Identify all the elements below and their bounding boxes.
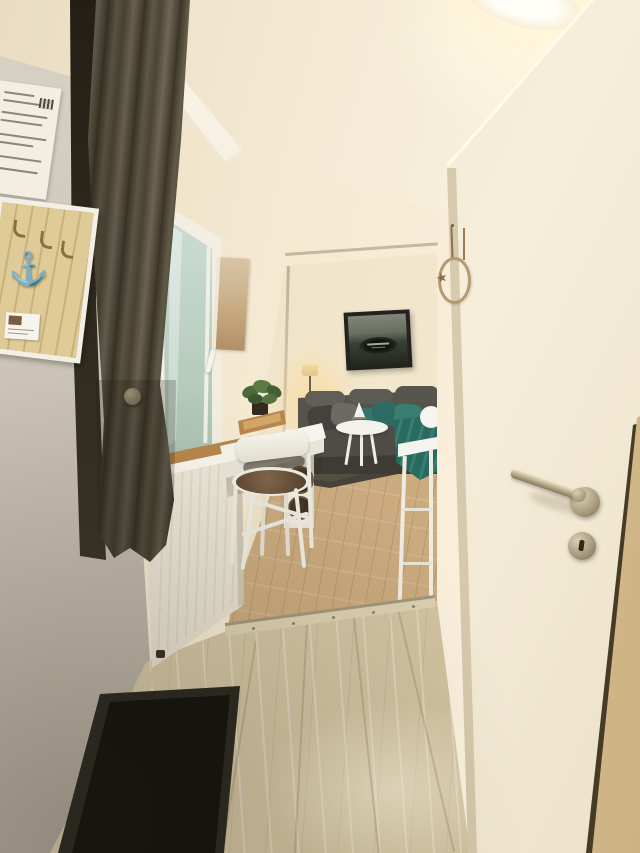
shelf-unit-shelf [401, 508, 432, 511]
sheet-text-line [4, 91, 34, 97]
strip-screw [412, 605, 415, 608]
key-hook [60, 241, 75, 259]
side-table-leg [360, 432, 363, 466]
rack-card-text [8, 332, 28, 334]
hallway-canvas-art [214, 257, 250, 350]
strip-screw [372, 611, 375, 614]
strip-screw [332, 616, 335, 619]
strip-screw [292, 622, 295, 625]
side-table [336, 420, 388, 435]
sheet-text-line [2, 111, 48, 119]
key-hook [39, 231, 54, 249]
boat-picture-image [348, 314, 409, 367]
boat-picture-frame [344, 309, 413, 370]
boat-hull [359, 336, 398, 355]
radiator-drain-valve [156, 650, 165, 658]
sailboat-ornament [354, 402, 365, 417]
sailboat-ornament-hull [352, 417, 366, 419]
sheet-text-line [0, 119, 42, 127]
decoration-stick [463, 228, 465, 260]
sheet-text-line [0, 133, 46, 142]
floor-lamp-shade [302, 364, 318, 376]
plant-leaf [248, 394, 263, 404]
rack-info-card [4, 312, 40, 340]
shelf-unit-shelf [403, 562, 432, 565]
sofa-back-cushion [395, 386, 439, 402]
apartment-hallway-photo: ⚓ ★ [0, 0, 640, 853]
sheet-text-line [0, 140, 33, 147]
sheet-text-line [0, 166, 38, 174]
sheet-barcode [39, 98, 54, 110]
anchor-ornament: ⚓ [8, 249, 49, 288]
key-hook [12, 220, 27, 238]
rack-card-photo [8, 315, 22, 325]
curtain-tieback-button [124, 388, 141, 405]
strip-screw [252, 627, 255, 630]
door-handle-neck [572, 488, 586, 502]
sheet-text-line [3, 99, 43, 107]
rack-card-text [8, 328, 34, 331]
sheet-text-line [0, 154, 41, 162]
shelf-unit-leg [429, 449, 433, 619]
